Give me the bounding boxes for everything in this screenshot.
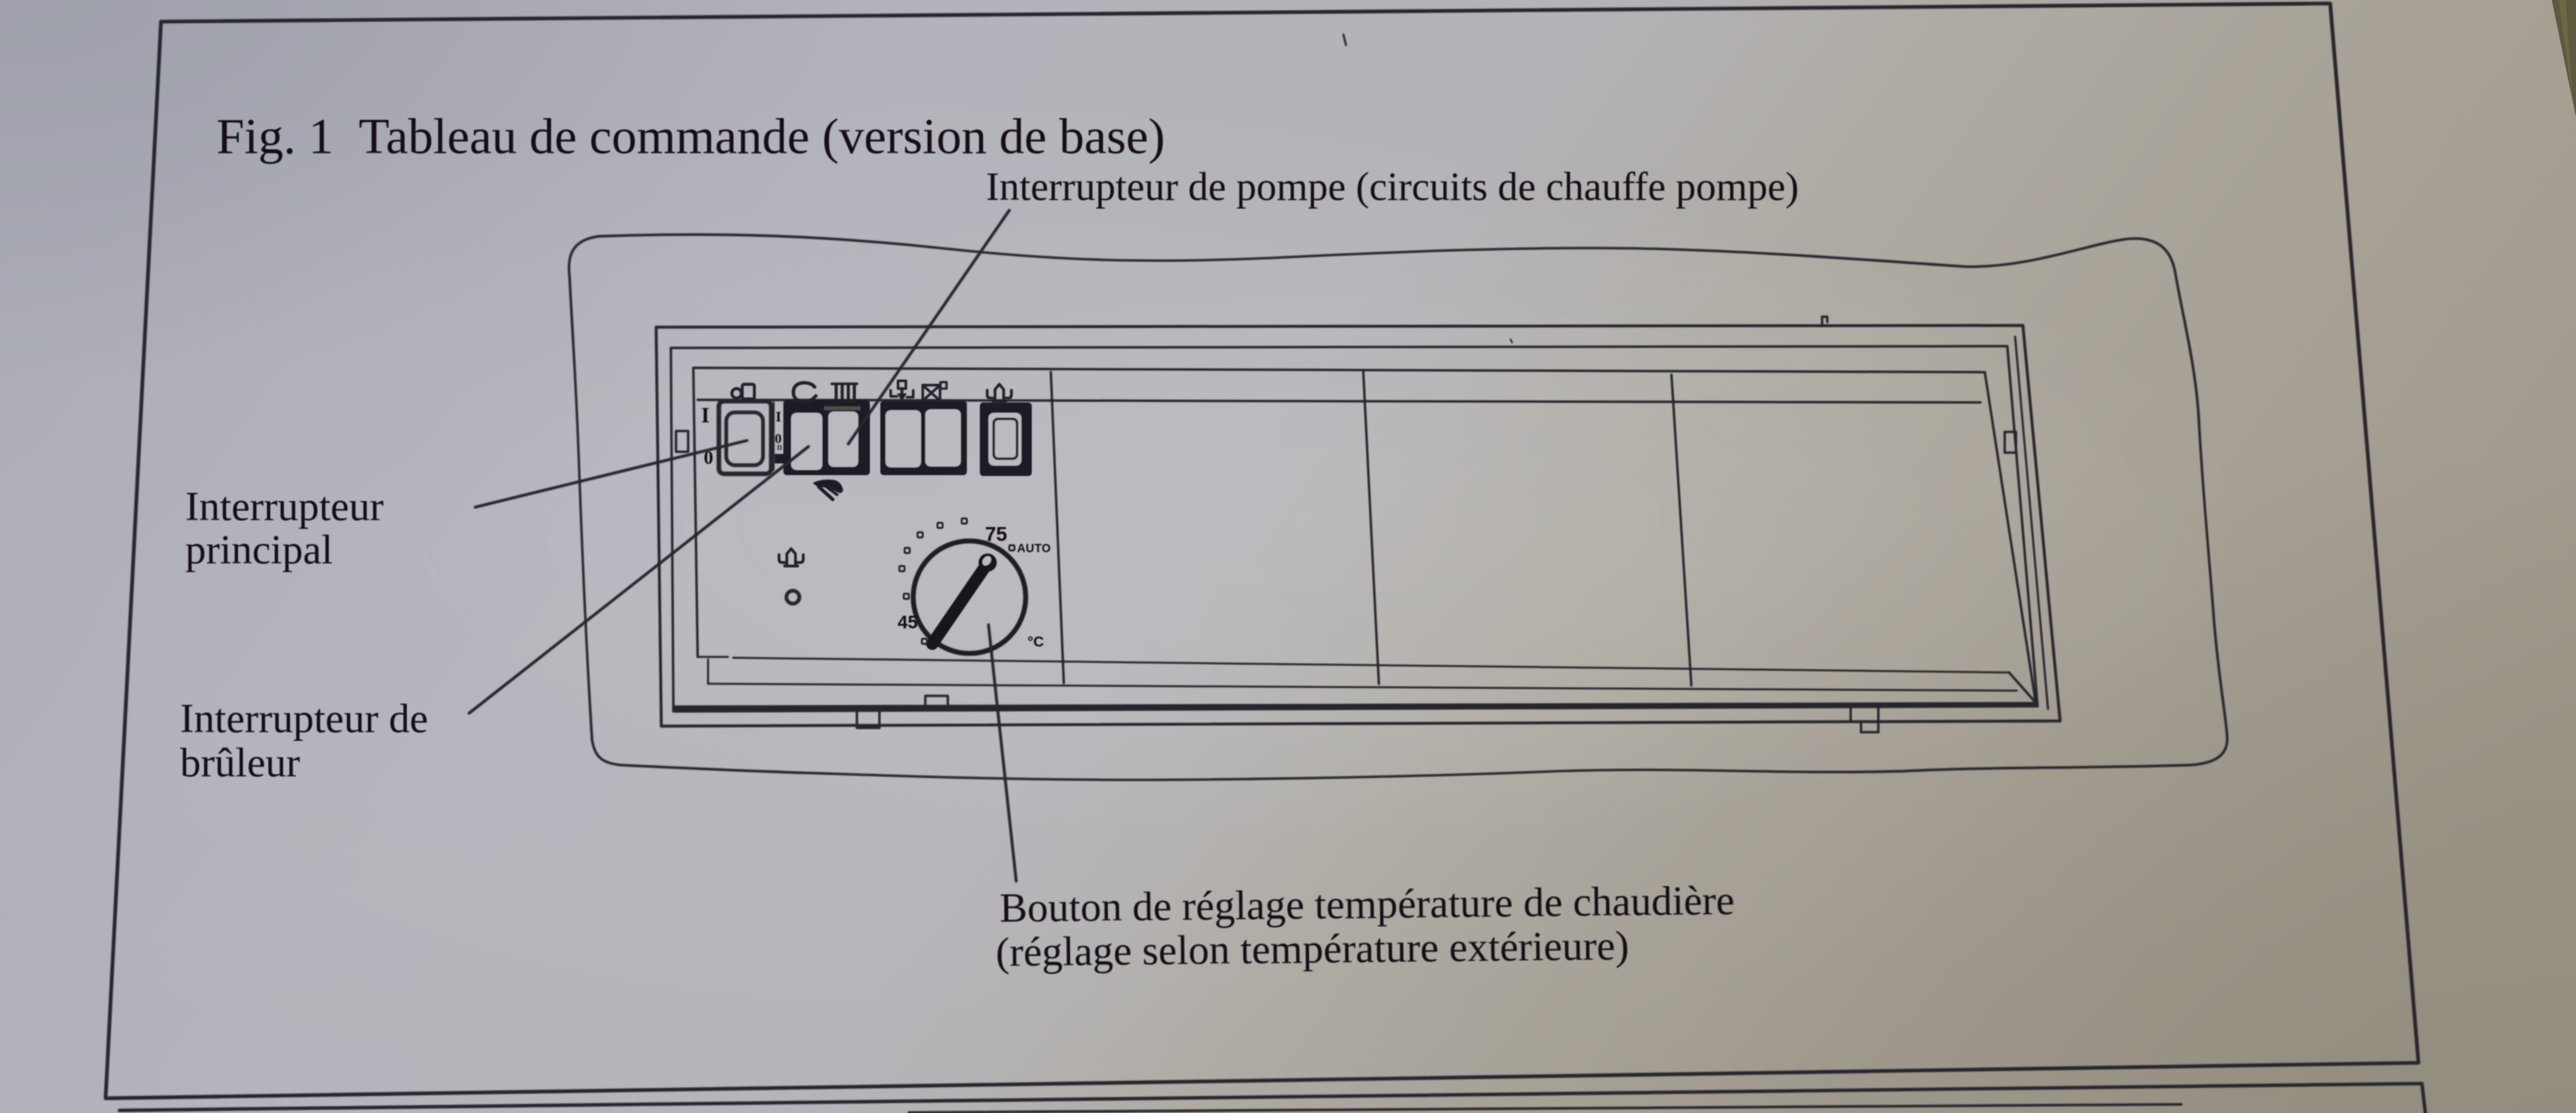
svg-text:Interrupteur de pompe (circuit: Interrupteur de pompe (circuits de chauf… [986,165,1799,209]
svg-text:principal: principal [185,527,333,573]
svg-text:°C: °C [1027,634,1044,650]
svg-text:Fig. 1 Tableau de commande (v: Fig. 1 Tableau de commande (version de b… [216,108,1165,164]
svg-text:Interrupteur: Interrupteur [185,484,383,530]
svg-text:AUTO: AUTO [1017,542,1051,555]
svg-text:I: I [776,409,782,425]
svg-text:I: I [701,404,710,428]
svg-text:0: 0 [775,432,782,447]
svg-text:brûleur: brûleur [180,740,300,786]
svg-text:45: 45 [898,613,918,633]
svg-text:Interrupteur de: Interrupteur de [180,696,428,742]
svg-text:75: 75 [985,523,1008,545]
svg-text:(réglage selon température ext: (réglage selon température extérieure) [995,923,1629,975]
svg-text:0: 0 [704,447,713,468]
